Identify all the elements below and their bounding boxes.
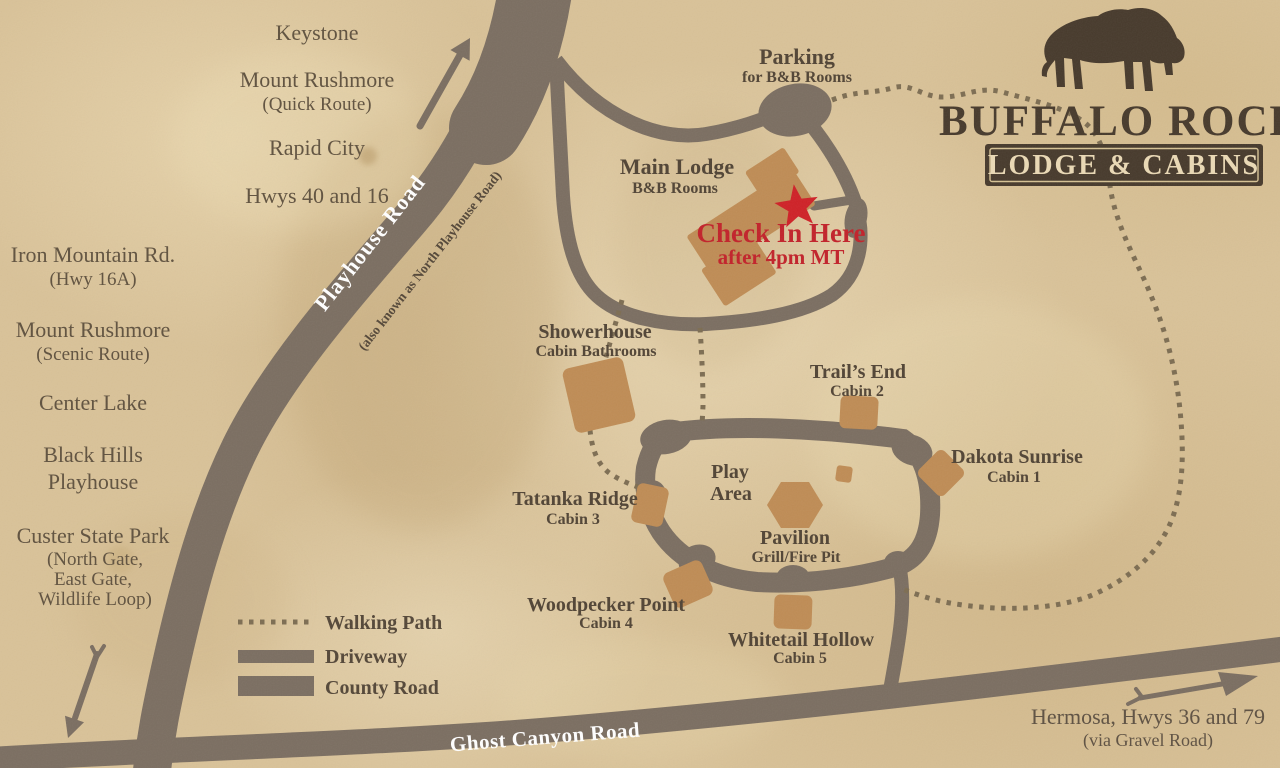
buffalo-rock-map: Walking Path Driveway County Road Keysto… bbox=[0, 0, 1280, 768]
grain-overlay bbox=[0, 0, 1280, 768]
